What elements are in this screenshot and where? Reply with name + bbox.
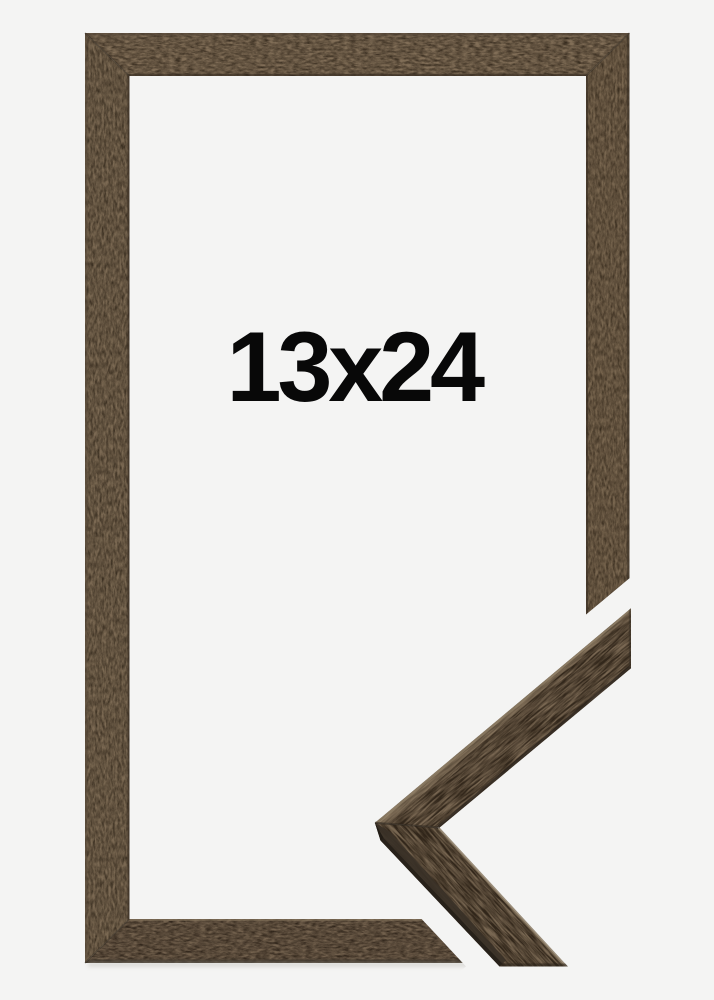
svg-text:13x24: 13x24 [227,311,485,422]
